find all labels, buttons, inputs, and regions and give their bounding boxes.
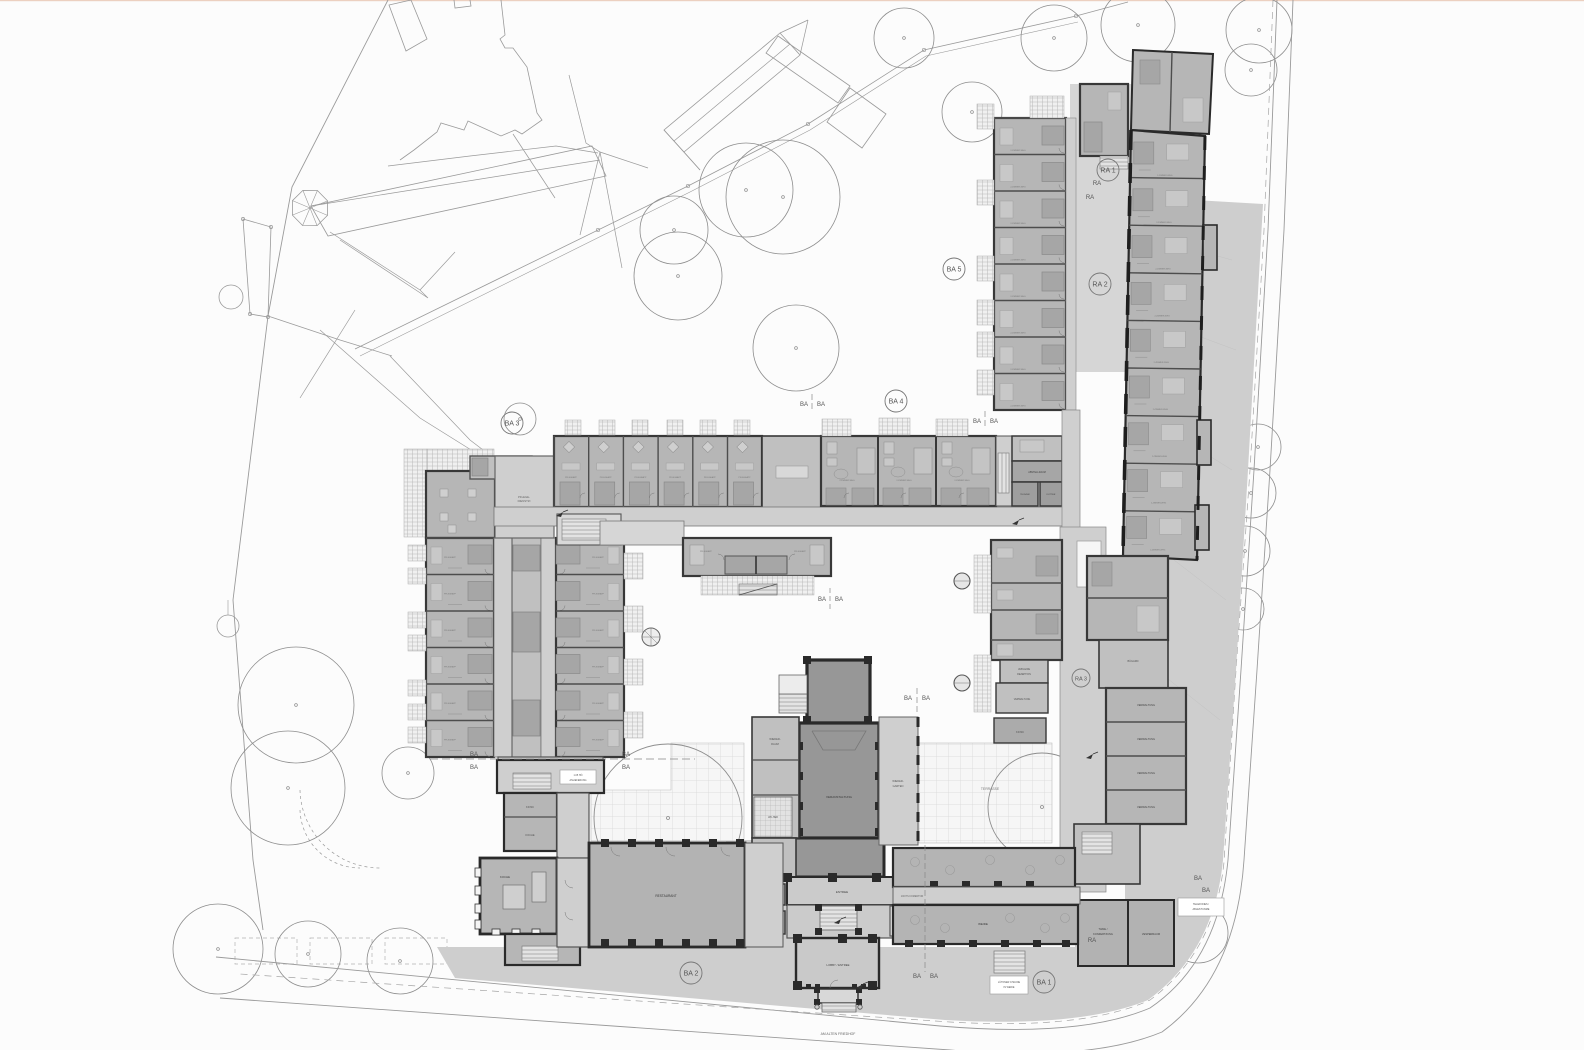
svg-text:PFLEGEAPP: PFLEGEAPP: [592, 593, 605, 596]
svg-text:WEIDE: WEIDE: [978, 922, 988, 926]
svg-text:RA: RA: [1093, 181, 1101, 187]
svg-text:PFLEGEAPP: PFLEGEAPP: [700, 550, 713, 553]
svg-text:BA: BA: [817, 402, 825, 408]
svg-text:PFLEGEAPP: PFLEGEAPP: [592, 629, 605, 632]
svg-text:2-ZIMMER-WHG: 2-ZIMMER-WHG: [1010, 260, 1026, 262]
svg-text:LÜTONER CHAUNE: LÜTONER CHAUNE: [998, 981, 1021, 984]
svg-text:2-ZIMMER-WHG: 2-ZIMMER-WHG: [1010, 369, 1026, 371]
svg-text:PFLEGEAPP: PFLEGEAPP: [592, 739, 605, 742]
svg-text:BA 3: BA 3: [505, 421, 520, 428]
svg-text:KONZERTZUNG: KONZERTZUNG: [1093, 932, 1113, 936]
svg-text:PFLEGEAPP: PFLEGEAPP: [600, 476, 613, 479]
svg-text:2-ZIMMER-WHG: 2-ZIMMER-WHG: [1157, 175, 1173, 177]
svg-text:BA: BA: [973, 419, 981, 425]
svg-text:RA 3: RA 3: [1075, 677, 1087, 683]
svg-text:2-ZIMMER-WHG: 2-ZIMMER-WHG: [1151, 503, 1167, 505]
svg-text:PFLEGEAPP: PFLEGEAPP: [592, 702, 605, 705]
svg-text:RAUM: RAUM: [771, 742, 779, 746]
svg-text:WC-HER: WC-HER: [768, 816, 778, 819]
svg-text:RA 1: RA 1: [1100, 168, 1115, 175]
svg-text:BA: BA: [470, 752, 478, 758]
svg-text:BA: BA: [1194, 876, 1202, 882]
svg-text:TAINE /: TAINE /: [1099, 927, 1108, 931]
svg-text:KIOSK: KIOSK: [1016, 730, 1024, 734]
svg-text:VERWALTUNG: VERWALTUNG: [1137, 771, 1155, 775]
svg-text:2-ZIMMER-WHG: 2-ZIMMER-WHG: [1010, 296, 1026, 298]
svg-text:PFLEGEAPP: PFLEGEAPP: [669, 476, 682, 479]
svg-text:UMKLEIDE: UMKLEIDE: [1018, 668, 1031, 671]
svg-text:PFLEGEAPP: PFLEGEAPP: [704, 476, 717, 479]
svg-text:BÜGARD: BÜGARD: [1127, 659, 1138, 663]
svg-text:AM ALTEN FRIEDHOF: AM ALTEN FRIEDHOF: [821, 1032, 856, 1036]
svg-text:BA: BA: [470, 765, 478, 771]
svg-text:BA 1: BA 1: [1037, 980, 1052, 987]
svg-text:RA: RA: [1086, 195, 1094, 201]
svg-text:RA 2: RA 2: [1092, 282, 1107, 289]
svg-text:PFLEGEAPP: PFLEGEAPP: [444, 593, 457, 596]
svg-text:BA: BA: [913, 974, 921, 980]
svg-text:GARTEN: GARTEN: [893, 784, 904, 788]
svg-text:PFLEGEAPP: PFLEGEAPP: [565, 476, 578, 479]
svg-text:BA: BA: [990, 419, 998, 425]
svg-text:100 HS KOMENTOR: 100 HS KOMENTOR: [901, 895, 924, 898]
svg-text:PFLEGEAPP: PFLEGEAPP: [444, 629, 457, 632]
svg-text:PFLEGEAPP: PFLEGEAPP: [592, 666, 605, 669]
svg-text:2-ZIMMER-WHG: 2-ZIMMER-WHG: [1155, 269, 1171, 271]
svg-text:BA: BA: [930, 974, 938, 980]
svg-text:VERWALTUNG: VERWALTUNG: [1137, 703, 1155, 707]
svg-text:1.05 HÖ: 1.05 HÖ: [574, 774, 583, 777]
svg-text:BA: BA: [835, 597, 843, 603]
svg-text:REZEPTION: REZEPTION: [1017, 673, 1031, 676]
svg-text:PFLEGEAPP: PFLEGEAPP: [634, 476, 647, 479]
svg-text:ENTREE: ENTREE: [836, 890, 848, 894]
svg-text:TELEFONES /: TELEFONES /: [1193, 903, 1210, 906]
svg-text:VERWALTUNG: VERWALTUNG: [1137, 805, 1155, 809]
svg-text:FUTTER: FUTTER: [1047, 494, 1056, 496]
svg-text:PFLEGEAPP: PFLEGEAPP: [444, 556, 457, 559]
svg-text:KOCHE: KOCHE: [500, 875, 510, 879]
svg-text:2-ZIMMER-WHG: 2-ZIMMER-WHG: [1010, 333, 1026, 335]
svg-text:KIOSK: KIOSK: [526, 805, 534, 809]
svg-text:2-ZIMMER-WHG: 2-ZIMMER-WHG: [1010, 406, 1026, 408]
svg-text:BA: BA: [622, 765, 630, 771]
svg-text:PFLEGEAPP: PFLEGEAPP: [444, 666, 457, 669]
svg-text:2-ZIMMER-WHG: 2-ZIMMER-WHG: [1152, 456, 1168, 458]
svg-text:BA 2: BA 2: [684, 971, 699, 978]
svg-text:BA 5: BA 5: [947, 267, 962, 274]
svg-text:2-ZIMMER-WHG: 2-ZIMMER-WHG: [1010, 187, 1026, 189]
svg-text:ABLESTUNME: ABLESTUNME: [1193, 908, 1210, 911]
svg-text:BA 4: BA 4: [889, 399, 904, 406]
svg-text:KOCHE: KOCHE: [525, 833, 534, 837]
svg-text:2-ZIMMER-WHG: 2-ZIMMER-WHG: [954, 480, 970, 482]
svg-text:LOBBY / ENTREE: LOBBY / ENTREE: [827, 963, 850, 967]
svg-text:WIEDER-: WIEDER-: [769, 737, 780, 741]
svg-text:BA: BA: [800, 402, 808, 408]
svg-text:2-ZIMMER-WHG: 2-ZIMMER-WHG: [1010, 150, 1026, 152]
svg-text:BA: BA: [818, 597, 826, 603]
svg-text:ABSTELLRAUM: ABSTELLRAUM: [1028, 471, 1046, 474]
svg-text:BA: BA: [904, 696, 912, 702]
svg-text:ANLIEFERUNG: ANLIEFERUNG: [569, 779, 586, 782]
svg-text:2-ZIMMER-WHG: 2-ZIMMER-WHG: [896, 480, 912, 482]
svg-text:WIEDER-: WIEDER-: [892, 779, 903, 783]
svg-text:2-ZIMMER-WHG: 2-ZIMMER-WHG: [839, 480, 855, 482]
svg-text:BA: BA: [622, 752, 630, 758]
svg-text:PFLEGEAPP: PFLEGEAPP: [592, 556, 605, 559]
svg-text:2-ZIMMER-WHG: 2-ZIMMER-WHG: [1154, 315, 1170, 317]
svg-text:2-ZIMMER-WHG: 2-ZIMMER-WHG: [1154, 362, 1170, 364]
svg-text:BA: BA: [1202, 888, 1210, 894]
svg-text:VERWALTUNG: VERWALTUNG: [1014, 698, 1031, 701]
svg-text:RA: RA: [1088, 938, 1096, 944]
svg-text:VESPERRAUM: VESPERRAUM: [1142, 932, 1160, 936]
svg-text:VERANSTALTUNG: VERANSTALTUNG: [826, 795, 853, 799]
svg-text:2-ZIMMER-WHG: 2-ZIMMER-WHG: [1156, 222, 1172, 224]
svg-text:TECHNIK: TECHNIK: [1020, 494, 1030, 496]
svg-text:IN WEIDE: IN WEIDE: [1004, 986, 1015, 989]
svg-text:2-ZIMMER-WHG: 2-ZIMMER-WHG: [1153, 409, 1169, 411]
svg-text:RESTAURANT: RESTAURANT: [655, 894, 676, 898]
svg-text:2-ZIMMER-WHG: 2-ZIMMER-WHG: [1010, 223, 1026, 225]
svg-text:VERWALTUNG: VERWALTUNG: [1137, 737, 1155, 741]
svg-text:PFLEGEAPP: PFLEGEAPP: [794, 550, 807, 553]
svg-text:PFLEGEAPP: PFLEGEAPP: [444, 739, 457, 742]
svg-text:PFLEGEAPP: PFLEGEAPP: [444, 702, 457, 705]
svg-text:2-ZIMMER-WHG: 2-ZIMMER-WHG: [1150, 549, 1166, 551]
svg-text:PFLEGEAPP: PFLEGEAPP: [739, 476, 752, 479]
svg-text:BA: BA: [922, 696, 930, 702]
svg-text:DIENSTZI: DIENSTZI: [518, 499, 531, 503]
